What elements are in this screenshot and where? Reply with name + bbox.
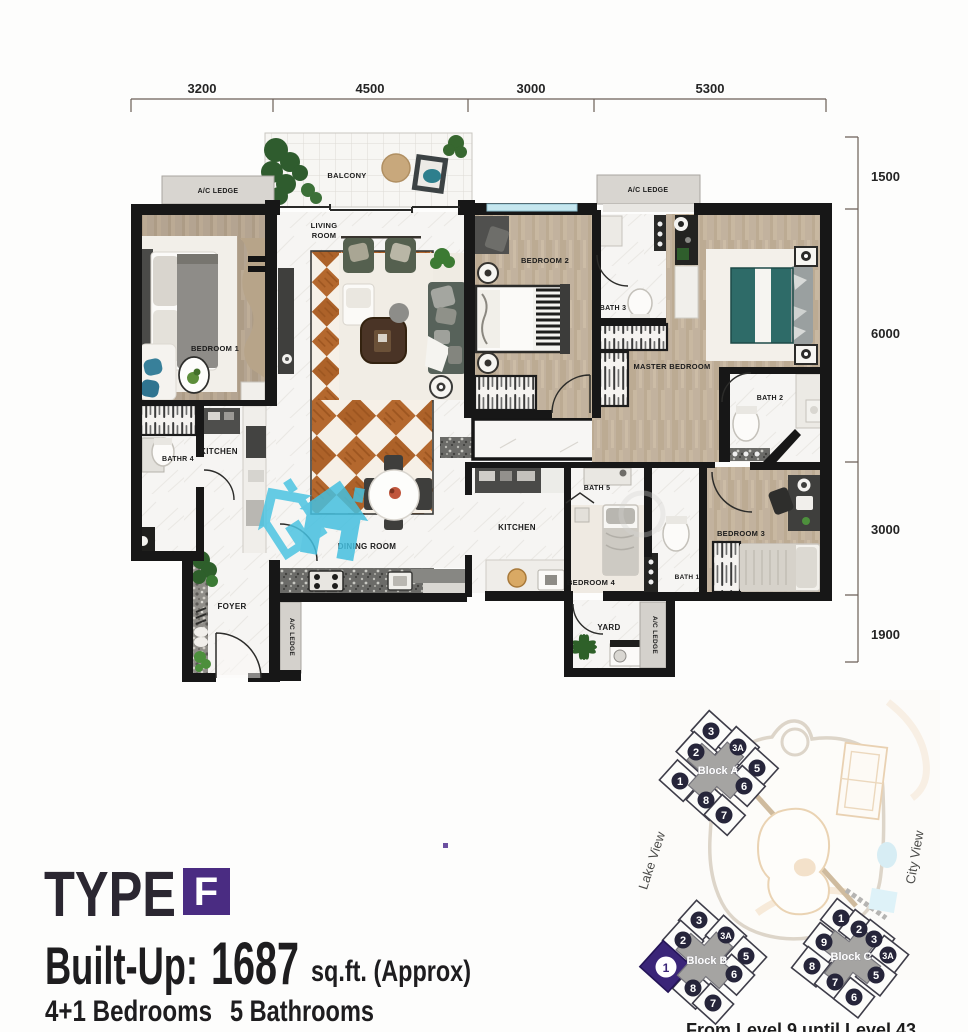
svg-text:2: 2 bbox=[693, 747, 699, 759]
svg-text:7: 7 bbox=[721, 810, 727, 822]
svg-text:7: 7 bbox=[832, 977, 838, 989]
svg-text:4500: 4500 bbox=[356, 81, 385, 96]
svg-text:1: 1 bbox=[677, 776, 683, 788]
svg-text:BEDROOM 1: BEDROOM 1 bbox=[191, 344, 239, 353]
svg-text:BATHR 4: BATHR 4 bbox=[162, 456, 194, 463]
svg-text:6: 6 bbox=[741, 781, 747, 793]
svg-text:LIVING: LIVING bbox=[311, 221, 338, 230]
svg-text:1: 1 bbox=[838, 913, 844, 925]
svg-text:5: 5 bbox=[873, 970, 879, 982]
svg-text:8: 8 bbox=[809, 961, 815, 973]
svg-text:KITCHEN: KITCHEN bbox=[200, 447, 238, 456]
svg-text:3000: 3000 bbox=[871, 522, 900, 537]
svg-text:BATH 5: BATH 5 bbox=[584, 485, 611, 492]
svg-text:Built-Up:: Built-Up: bbox=[45, 937, 198, 996]
svg-text:2: 2 bbox=[680, 935, 686, 947]
svg-text:8: 8 bbox=[690, 983, 696, 995]
svg-text:Block B: Block B bbox=[687, 955, 728, 967]
svg-text:5 Bathrooms: 5 Bathrooms bbox=[230, 995, 374, 1028]
svg-text:5: 5 bbox=[754, 763, 760, 775]
svg-text:A/C LEDGE: A/C LEDGE bbox=[288, 618, 295, 656]
svg-text:9: 9 bbox=[821, 937, 827, 949]
svg-text:3A: 3A bbox=[732, 743, 744, 753]
svg-text:BEDROOM 4: BEDROOM 4 bbox=[567, 578, 616, 587]
svg-text:BATH 1: BATH 1 bbox=[675, 574, 700, 581]
svg-text:4+1 Bedrooms: 4+1 Bedrooms bbox=[45, 995, 212, 1028]
svg-text:3: 3 bbox=[708, 726, 714, 738]
svg-text:6: 6 bbox=[851, 992, 857, 1004]
svg-text:From Level 9 until Level 43: From Level 9 until Level 43 bbox=[686, 1020, 916, 1032]
svg-text:A/C LEDGE: A/C LEDGE bbox=[651, 616, 658, 654]
svg-text:BALCONY: BALCONY bbox=[327, 171, 366, 180]
svg-text:Block A: Block A bbox=[698, 765, 739, 777]
svg-text:A/C LEDGE: A/C LEDGE bbox=[198, 188, 239, 195]
svg-text:7: 7 bbox=[710, 998, 716, 1010]
svg-text:TYPE: TYPE bbox=[44, 858, 176, 930]
svg-text:3A: 3A bbox=[882, 951, 894, 961]
svg-text:3: 3 bbox=[871, 934, 877, 946]
svg-text:BATH 3: BATH 3 bbox=[600, 305, 627, 312]
svg-text:BEDROOM 3: BEDROOM 3 bbox=[717, 529, 765, 538]
svg-text:1: 1 bbox=[663, 961, 670, 975]
svg-text:BATH 2: BATH 2 bbox=[757, 395, 784, 402]
svg-text:6000: 6000 bbox=[871, 326, 900, 341]
svg-text:FOYER: FOYER bbox=[217, 602, 246, 611]
svg-text:MASTER BEDROOM: MASTER BEDROOM bbox=[633, 362, 710, 371]
svg-text:1687: 1687 bbox=[211, 930, 299, 997]
svg-text:1500: 1500 bbox=[871, 169, 900, 184]
svg-text:A/C LEDGE: A/C LEDGE bbox=[628, 187, 669, 194]
svg-text:5: 5 bbox=[743, 951, 749, 963]
svg-text:2: 2 bbox=[856, 924, 862, 936]
svg-text:5300: 5300 bbox=[696, 81, 725, 96]
svg-text:F: F bbox=[194, 870, 218, 914]
svg-text:6: 6 bbox=[731, 969, 737, 981]
svg-text:KITCHEN: KITCHEN bbox=[498, 523, 536, 532]
svg-text:3: 3 bbox=[696, 915, 702, 927]
svg-text:ROOM: ROOM bbox=[312, 231, 337, 240]
svg-text:3200: 3200 bbox=[188, 81, 217, 96]
svg-text:Block C: Block C bbox=[831, 951, 872, 963]
svg-text:3A: 3A bbox=[720, 931, 732, 941]
svg-text:sq.ft. (Approx): sq.ft. (Approx) bbox=[311, 955, 471, 988]
svg-text:3000: 3000 bbox=[517, 81, 546, 96]
svg-text:8: 8 bbox=[703, 795, 709, 807]
svg-text:BEDROOM 2: BEDROOM 2 bbox=[521, 256, 569, 265]
svg-text:YARD: YARD bbox=[597, 623, 620, 632]
svg-text:1900: 1900 bbox=[871, 627, 900, 642]
